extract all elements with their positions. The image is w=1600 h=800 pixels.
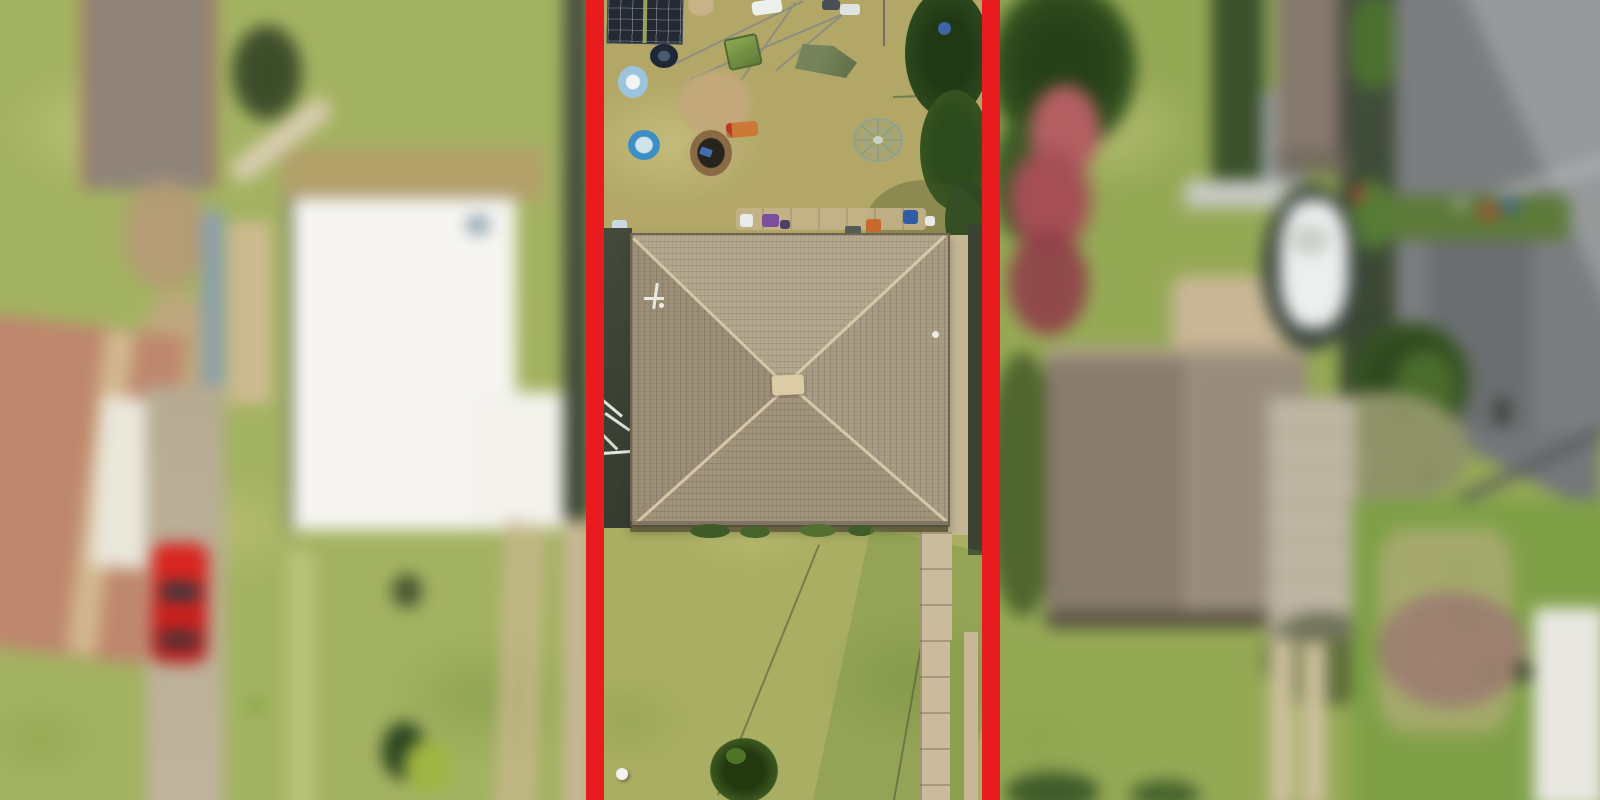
- featured-property-region: [586, 0, 1000, 800]
- garden-red-toy: [1480, 205, 1498, 218]
- white-car: [1280, 200, 1348, 328]
- brown-roof-eave: [1276, 150, 1350, 178]
- small-dark-dot: [1516, 662, 1532, 682]
- wheel-track-b: [1302, 642, 1326, 800]
- antenna-base-dot: [659, 303, 664, 308]
- car-windshield: [160, 583, 200, 601]
- white-ball: [616, 768, 628, 780]
- front-path-side-track: [964, 632, 978, 800]
- front-path-main: [920, 532, 952, 800]
- brown-roof-edge: [1338, 0, 1350, 164]
- tv-antenna-arm: [644, 297, 664, 300]
- paddling-pool-scalloped: [618, 66, 648, 98]
- path-horizontal: [1185, 180, 1285, 208]
- blue-ball: [938, 22, 951, 35]
- toy-orange-bucket: [866, 219, 881, 232]
- highlight-border-right: [982, 0, 1000, 800]
- toy-white-2: [925, 216, 935, 226]
- boundary-fence-right: [968, 225, 982, 555]
- solar-panel-gap: [643, 0, 648, 43]
- toy-violet: [780, 220, 790, 229]
- dome-climber: [852, 116, 906, 164]
- aerial-photo: [0, 0, 1600, 800]
- shed-roof-left-face: [1046, 346, 1188, 624]
- paddling-pool-blue: [628, 130, 660, 160]
- foundation-plant-2: [740, 526, 770, 538]
- dirt-path-upper: [118, 175, 213, 295]
- wheel-track-a: [1270, 638, 1294, 800]
- washing-white-2: [840, 4, 860, 15]
- white-car-window: [1290, 225, 1330, 255]
- toy-purple: [762, 214, 779, 227]
- side-path-upper: [948, 235, 968, 535]
- small-shadow-dot: [1494, 396, 1510, 428]
- dirt-strip: [282, 148, 544, 202]
- toy-white-1: [740, 214, 753, 227]
- car-rear-window: [159, 633, 199, 647]
- red-car: [150, 543, 209, 664]
- red-speck: [1352, 186, 1364, 202]
- garden-bed: [1390, 195, 1570, 240]
- lawn-dot: [398, 594, 410, 606]
- tree-canopy-pink: [1378, 592, 1526, 707]
- lawn-track: [288, 552, 314, 800]
- side-passage: [604, 228, 632, 528]
- rooftop-blue-object: [466, 216, 490, 234]
- solar-panels: [607, 0, 684, 45]
- shed-eave-shadow: [1046, 612, 1304, 628]
- garden-blue-toy: [1502, 198, 1518, 212]
- left-property-region: [0, 0, 588, 800]
- driveway: [1268, 396, 1356, 641]
- front-bush-highlight: [726, 748, 746, 764]
- toy-blue-bin: [903, 210, 918, 224]
- foundation-plant-3: [800, 524, 836, 537]
- carport-roof: [82, 0, 216, 189]
- boundary-path-left: [564, 520, 588, 800]
- navy-pool-ring: [650, 44, 678, 68]
- bush-tiny: [248, 698, 264, 714]
- roof-vent: [932, 331, 939, 338]
- foundation-plant-1: [690, 524, 730, 538]
- front-path-median: [950, 640, 964, 800]
- tan-side-path: [228, 222, 272, 404]
- highlight-border-left: [586, 0, 604, 800]
- roof-apex-cap: [771, 374, 804, 396]
- white-concrete-pad: [1534, 608, 1600, 800]
- front-garden-bush: [710, 738, 778, 800]
- shrubs-top: [232, 25, 302, 120]
- bush-bright: [404, 740, 452, 792]
- hedge: [1212, 0, 1264, 189]
- boundary-fence-left: [564, 0, 588, 524]
- washing-dark: [822, 0, 840, 10]
- right-property-region: [996, 0, 1600, 800]
- eave-shadow: [630, 521, 948, 532]
- garden-white-toy: [1456, 200, 1466, 208]
- clothesline-pole: [883, 0, 885, 46]
- pink-tree-lower: [1008, 230, 1088, 335]
- shed-ridge-cap: [1046, 346, 1304, 358]
- hip-roof-house: [630, 233, 950, 527]
